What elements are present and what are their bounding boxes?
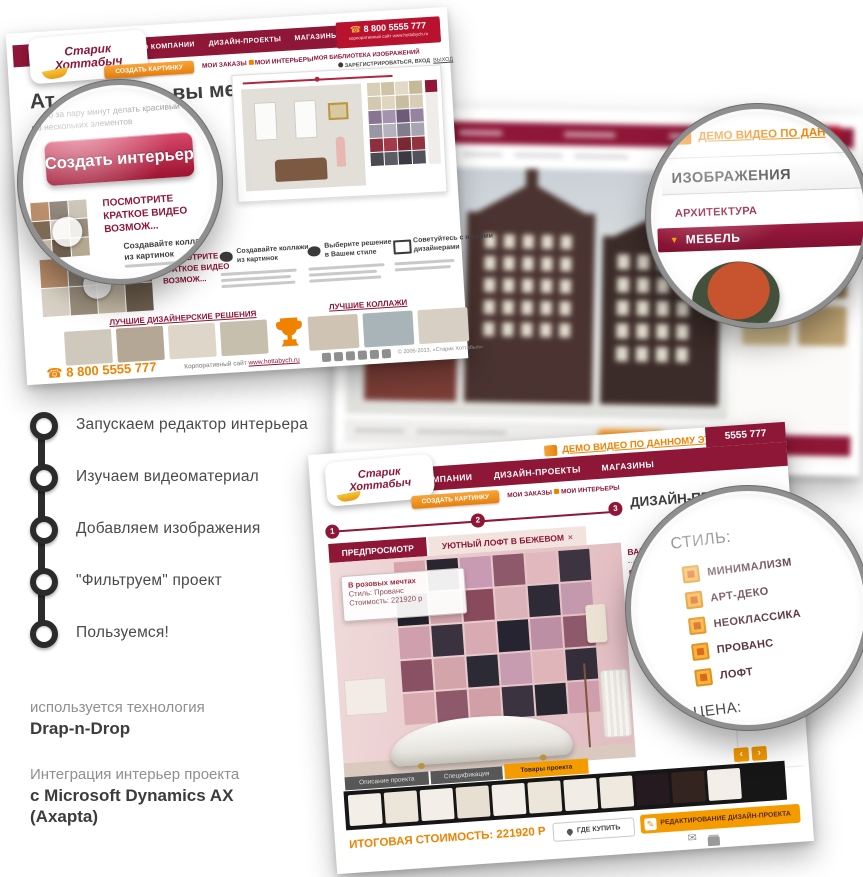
- style-option-loft[interactable]: ЛОФТ: [694, 663, 754, 687]
- project-tooltip: В розовых мечтах Стиль: Прованс Стоимост…: [340, 568, 467, 623]
- grid-cell: [348, 793, 383, 826]
- grid-cell: [346, 351, 356, 361]
- grid-cell: [617, 277, 629, 292]
- my-orders-link[interactable]: МОИ ЗАКАЗЫ: [507, 489, 559, 500]
- grid-cell: [125, 282, 154, 312]
- gallery1-thumbs[interactable]: [64, 319, 269, 365]
- grid-cell: [384, 138, 398, 152]
- timeline-dot-3: [30, 516, 58, 544]
- grid-cell: [560, 279, 571, 293]
- person-icon: [338, 62, 343, 67]
- texture-palette-grid[interactable]: [367, 80, 426, 166]
- timeline-dot-4: [30, 568, 58, 596]
- category-furniture-label: МЕБЕЛЬ: [685, 231, 740, 247]
- grid-cell: [398, 626, 431, 659]
- total-cost: ИТОГОВАЯ СТОИМОСТЬ: 221920 Р: [349, 826, 546, 852]
- bowl-image[interactable]: [685, 253, 786, 328]
- grid-cell: [168, 323, 217, 360]
- grid-cell: [398, 137, 412, 151]
- checkbox-icon[interactable]: [688, 616, 707, 635]
- style-option-label: ПРОВАНС: [716, 637, 774, 656]
- style-option-label: ЛОФТ: [719, 665, 753, 681]
- integration-note-value1: с Microsoft Dynamics AX: [30, 786, 233, 806]
- where-to-buy-button[interactable]: ГДЕ КУПИТЬ: [552, 817, 635, 842]
- my-interiors-link[interactable]: МОИ ИНТЕРЬЕРЫ: [561, 485, 620, 496]
- grid-cell: [358, 350, 368, 360]
- grid-cell: [484, 256, 495, 270]
- orders-badge: [249, 60, 254, 65]
- magnifier-style-filter: × СТИЛЬ: МИНИМАЛИЗМ АРТ-ДЕКО НЕОКЛАССИКА…: [626, 486, 863, 730]
- grid-cell: [540, 323, 551, 337]
- grid-cell: [384, 152, 398, 166]
- grid-cell: [558, 549, 591, 582]
- close-icon[interactable]: ×: [814, 493, 829, 514]
- grid-cell: [370, 138, 384, 152]
- grid-cell: [676, 347, 688, 362]
- timeline-step-2: Изучаем видеоматериал: [76, 468, 259, 486]
- step-dot-2[interactable]: 2: [470, 513, 485, 528]
- checkbox-icon[interactable]: [694, 668, 713, 687]
- grid-cell: [563, 778, 598, 811]
- style-option-neoclassic[interactable]: НЕОКЛАССИКА: [688, 605, 802, 636]
- grid-cell: [33, 240, 52, 259]
- feature2-title1: Выберите решение: [324, 239, 392, 250]
- grid-cell: [503, 256, 514, 270]
- feature1-text: [221, 281, 295, 289]
- social-icons-row[interactable]: [322, 349, 391, 362]
- step-dot-1[interactable]: 1: [325, 524, 340, 539]
- grid-cell: [599, 775, 634, 808]
- edit-project-label: РЕДАКТИРОВАНИЕ ДИЗАЙН-ПРОЕКТА: [660, 810, 791, 826]
- category-architec[interactable]: АРХИТЕКТУРА: [675, 205, 758, 220]
- film-icon: [544, 445, 558, 457]
- toolbar-placeholder: [416, 430, 506, 435]
- grid-cell: [561, 235, 572, 249]
- towel: [585, 604, 608, 643]
- radiator: [600, 668, 633, 738]
- grid-cell: [656, 347, 668, 362]
- grid-cell: [502, 685, 535, 718]
- header-phone: 5555 777: [724, 428, 766, 442]
- grid-cell: [412, 136, 426, 150]
- step-number: 3: [613, 504, 618, 513]
- grid-cell: [637, 255, 649, 270]
- menu-placeholder: [459, 130, 503, 137]
- grid-cell: [522, 257, 533, 271]
- grid-cell: [499, 652, 532, 685]
- timeline-step-5: Пользуемся!: [76, 624, 169, 642]
- lamp-icon: [42, 67, 69, 81]
- video-caption-zoom-3: ВОЗМОЖ...: [104, 220, 159, 235]
- checkbox-icon[interactable]: [681, 565, 700, 584]
- menu-placeholder: [564, 131, 616, 138]
- grid-cell: [367, 83, 381, 97]
- style-option-label: МИНИМАЛИЗМ: [707, 556, 793, 578]
- timeline-dot-1: [30, 412, 58, 440]
- grid-cell: [382, 349, 392, 359]
- grid-cell: [495, 586, 528, 619]
- grid-cell: [671, 770, 706, 803]
- trophy-icon: [275, 315, 303, 351]
- tech-note-value: Drap-n-Drop: [30, 719, 130, 739]
- grid-cell: [410, 94, 424, 108]
- bathroom-photo: В розовых мечтах Стиль: Прованс Стоимост…: [330, 543, 636, 778]
- grid-cell: [484, 300, 495, 314]
- step-number: 1: [330, 527, 335, 536]
- grid-cell: [466, 654, 499, 687]
- grid-cell: [559, 323, 570, 337]
- grid-cell: [68, 199, 87, 218]
- grid-cell: [411, 122, 425, 136]
- timeline-step-3: Добавляем изображения: [76, 520, 260, 538]
- grid-cell: [541, 301, 552, 315]
- room-preview: [241, 83, 366, 191]
- print-icon[interactable]: [707, 832, 720, 851]
- grid-cell: [370, 350, 380, 360]
- grid-cell: [541, 257, 552, 271]
- my-orders-label: МОИ ЗАКАЗЫ: [507, 489, 552, 499]
- next-arrow[interactable]: ›: [751, 746, 767, 761]
- grid-cell: [397, 123, 411, 137]
- link-placeholder: [514, 153, 562, 157]
- grid-cell: [503, 300, 514, 314]
- prev-arrow[interactable]: ‹: [733, 747, 749, 762]
- images-panel-header: ИЗОБРАЖЕНИЯ: [661, 157, 862, 195]
- next-arrow-icon: ›: [757, 747, 761, 758]
- feature1-title1: Создавайте коллажи: [236, 244, 309, 255]
- grid-cell: [541, 279, 552, 293]
- grid-cell: [455, 785, 490, 818]
- grid-cell: [497, 619, 530, 652]
- checkbox-icon[interactable]: [691, 642, 710, 661]
- footer-site-label: Корпоративный сайт: [184, 360, 247, 371]
- demo-video-link[interactable]: ДЕМО ВИДЕО ПО ДАН: [698, 127, 826, 143]
- film-icon: [674, 131, 691, 145]
- style-option-label: АРТ-ДЕКО: [710, 585, 769, 604]
- poster-canvas: О КОМПАНИИ ДИЗАЙН-ПРОЕКТЫ МАГАЗИНЫ КОНТА…: [0, 0, 863, 877]
- my-orders-label: МОИ ЗАКАЗЫ: [202, 60, 247, 70]
- link-placeholder: [574, 155, 628, 159]
- toolbar-placeholder: [355, 429, 405, 433]
- feature1-zoom-text: [125, 261, 185, 268]
- grid-cell: [64, 329, 113, 366]
- grid-cell: [616, 346, 628, 361]
- grid-cell: [370, 152, 384, 166]
- tab-close-icon[interactable]: ×: [568, 531, 574, 541]
- images-panel-title: ИЗОБРАЖЕНИЯ: [671, 167, 791, 187]
- footer-site: Корпоративный сайт www.hottabych.ru: [184, 356, 300, 370]
- grid-cell: [637, 301, 649, 316]
- grid-cell: [410, 108, 424, 122]
- checkbox-icon[interactable]: [685, 591, 704, 610]
- monitor-icon: [393, 239, 412, 254]
- chevron-down-icon: ▼: [670, 235, 679, 245]
- grid-cell: [522, 301, 533, 315]
- grid-cell: [636, 347, 648, 362]
- my-orders-link[interactable]: МОИ ЗАКАЗЫ: [202, 60, 254, 70]
- grid-cell: [525, 551, 558, 584]
- palette-icon: [219, 251, 233, 262]
- grid-cell: [420, 788, 455, 821]
- grid-cell: [637, 278, 649, 293]
- footer-site-url[interactable]: www.hottabych.ru: [248, 356, 300, 366]
- timeline-step-1: Запускаем редактор интерьера: [76, 416, 308, 434]
- grid-cell: [433, 657, 466, 690]
- grid-cell: [395, 81, 409, 95]
- grid-cell: [532, 650, 565, 683]
- grid-cell: [396, 109, 410, 123]
- grid-cell: [484, 278, 495, 292]
- window-shape: [254, 102, 278, 141]
- grid-cell: [220, 319, 269, 356]
- grid-cell: [409, 80, 423, 94]
- phone-icon: ☎: [350, 24, 362, 35]
- feature2-text: [309, 275, 381, 282]
- timeline-dot-2: [30, 464, 58, 492]
- grid-cell: [707, 768, 742, 801]
- phone-icon: ☎: [46, 365, 63, 381]
- grid-cell: [369, 124, 383, 138]
- brick-house: [464, 212, 595, 404]
- slider-dot[interactable]: [314, 77, 319, 82]
- where-to-buy-label: ГДЕ КУПИТЬ: [577, 824, 621, 834]
- grid-cell: [431, 624, 464, 657]
- grid-cell: [504, 234, 515, 248]
- grid-cell: [398, 151, 412, 165]
- style-option-label: НЕОКЛАССИКА: [713, 607, 802, 630]
- grid-cell: [528, 584, 561, 617]
- gallery2-thumbs[interactable]: [308, 307, 470, 351]
- grid-cell: [616, 323, 628, 338]
- grid-cell: [522, 279, 533, 293]
- integration-note-label: Интеграция интерьер проекта: [30, 766, 239, 783]
- grid-cell: [502, 322, 513, 336]
- feature1-title2: из картинок: [237, 255, 278, 264]
- step-dot-3[interactable]: 3: [608, 501, 623, 516]
- grid-cell: [382, 96, 396, 110]
- feature3-text: [395, 265, 451, 271]
- grid-cell: [656, 324, 668, 339]
- grid-cell: [492, 553, 525, 586]
- mini-panel: [425, 80, 441, 164]
- shelf-unit: [344, 677, 388, 716]
- grid-cell: [30, 202, 49, 221]
- grid-cell: [636, 324, 648, 339]
- feature2-title2: в Вашем стиле: [325, 249, 377, 259]
- grid-cell: [383, 124, 397, 138]
- grid-cell: [381, 82, 395, 96]
- style-option-provence[interactable]: ПРОВАНС: [691, 634, 774, 661]
- grid-cell: [527, 780, 562, 813]
- step-number: 2: [475, 515, 480, 524]
- category-furniture-selected[interactable]: ▼ МЕБЕЛЬ: [657, 221, 863, 252]
- grid-cell: [523, 235, 534, 249]
- grid-cell: [382, 110, 396, 124]
- style-filter-title: СТИЛЬ:: [670, 529, 732, 554]
- house-windows: [483, 234, 572, 338]
- picture-frame: [328, 102, 349, 120]
- logout-link[interactable]: ВЫХОД: [433, 57, 453, 64]
- orders-badge: [554, 489, 559, 494]
- editor-preview-card[interactable]: [231, 64, 447, 202]
- footer-phone: ☎ 8 800 5555 777: [46, 359, 157, 382]
- style-option-artdeco[interactable]: АРТ-ДЕКО: [685, 582, 770, 609]
- grid-cell: [565, 648, 598, 681]
- tech-note-label: используется технология: [30, 699, 205, 716]
- grid-cell: [617, 300, 629, 315]
- grid-cell: [412, 150, 426, 164]
- grid-cell: [417, 307, 469, 344]
- grid-cell: [401, 659, 434, 692]
- grid-cell: [32, 221, 51, 240]
- palette-icon: [307, 246, 321, 257]
- timeline-dot-5: [30, 620, 58, 648]
- grid-cell: [396, 95, 410, 109]
- grid-cell: [308, 314, 360, 351]
- window-shape: [294, 100, 318, 139]
- doll-figure: [336, 136, 347, 166]
- create-interior-button[interactable]: Создать интерьер: [44, 132, 195, 186]
- grid-cell: [116, 326, 165, 363]
- edit-project-button[interactable]: ✎ РЕДАКТИРОВАНИЕ ДИЗАЙН-ПРОЕКТА: [640, 804, 801, 834]
- feature1-zoom-title2: из картинок: [124, 248, 174, 261]
- magnifier-create-button: всего за пару минут делать красивый инте…: [18, 80, 222, 284]
- magnifier-images-panel: ДЕМО ВИДЕО ПО ДАН ИЗОБРАЖЕНИЯ АРХИТЕКТУР…: [646, 104, 863, 328]
- grid-cell: [334, 352, 344, 362]
- email-icon[interactable]: ✉: [687, 831, 697, 845]
- phone-box: ☎ 8 800 5555 777 корпоративный сайт www.…: [336, 16, 441, 48]
- grid-cell: [521, 323, 532, 337]
- grid-cell: [368, 97, 382, 111]
- integration-note-value2: (Axapta): [30, 807, 98, 827]
- pencil-icon: ✎: [644, 817, 657, 830]
- grid-cell: [535, 683, 568, 716]
- grid-cell: [362, 311, 414, 348]
- my-interiors-link[interactable]: МОИ ИНТЕРЬЕРЫ: [255, 56, 314, 67]
- grid-cell: [384, 790, 419, 823]
- grid-cell: [41, 287, 70, 317]
- grid-cell: [617, 254, 629, 269]
- link-placeholder: [462, 153, 502, 157]
- timeline-step-4: "Фильтруем" проект: [76, 572, 222, 590]
- grid-cell: [676, 324, 688, 339]
- prev-arrow-icon: ‹: [739, 749, 743, 760]
- grid-cell: [322, 353, 332, 363]
- style-option-minimalism[interactable]: МИНИМАЛИЗМ: [681, 553, 792, 583]
- gallery2-title: ЛУЧШИЕ КОЛЛАЖИ: [329, 298, 408, 312]
- pin-icon: [566, 827, 574, 835]
- grid-cell: [368, 110, 382, 124]
- grid-cell: [560, 257, 571, 271]
- lamp-icon: [337, 491, 362, 503]
- sofa-shape: [275, 157, 328, 182]
- grid-cell: [403, 692, 436, 725]
- grid-cell: [560, 301, 571, 315]
- grid-cell: [491, 783, 526, 816]
- chimney: [526, 169, 538, 187]
- grid-cell: [464, 622, 497, 655]
- grid-cell: [635, 773, 670, 806]
- price-filter-title: ЦЕНА:: [692, 699, 742, 722]
- create-interior-label: Создать интерьер: [44, 144, 194, 173]
- feature3-title2: дизайнерами: [413, 244, 459, 254]
- grid-cell: [503, 278, 514, 292]
- grid-cell: [542, 235, 553, 249]
- grid-cell: [483, 322, 494, 336]
- grid-cell: [530, 617, 563, 650]
